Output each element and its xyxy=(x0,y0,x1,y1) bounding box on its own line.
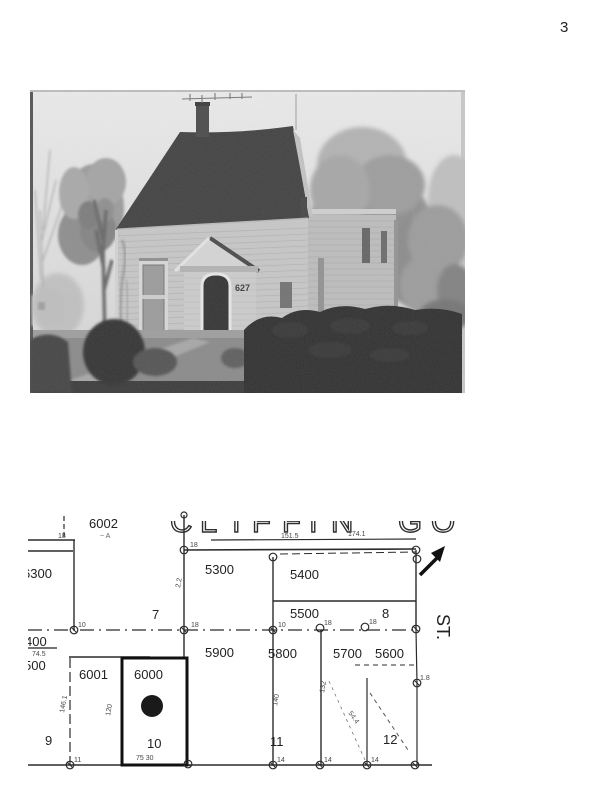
svg-text:5900: 5900 xyxy=(205,645,234,660)
svg-text:1.8: 1.8 xyxy=(420,675,430,682)
svg-text:C: C xyxy=(170,504,192,539)
svg-text:18: 18 xyxy=(324,620,332,627)
svg-text:174.1: 174.1 xyxy=(348,531,366,538)
svg-text:5600: 5600 xyxy=(375,646,404,661)
svg-text:6001: 6001 xyxy=(79,667,108,682)
svg-text:74.5: 74.5 xyxy=(32,651,46,658)
svg-text:~ A: ~ A xyxy=(100,533,111,540)
svg-text:14: 14 xyxy=(371,757,379,764)
svg-text:400: 400 xyxy=(28,634,47,649)
svg-text:75 30: 75 30 xyxy=(136,755,154,762)
svg-text:132: 132 xyxy=(319,681,328,694)
svg-text:ST.: ST. xyxy=(433,614,453,640)
svg-text:146.1: 146.1 xyxy=(59,695,69,714)
svg-text:14: 14 xyxy=(277,757,285,764)
svg-text:18: 18 xyxy=(190,542,198,549)
svg-text:18: 18 xyxy=(369,619,377,626)
svg-text:I: I xyxy=(232,504,241,539)
svg-text:6000: 6000 xyxy=(134,667,163,682)
svg-text:6002: 6002 xyxy=(89,516,118,531)
svg-text:5800: 5800 xyxy=(268,646,297,661)
svg-text:6300: 6300 xyxy=(28,566,52,581)
svg-text:2.2: 2.2 xyxy=(175,577,184,588)
svg-text:I: I xyxy=(309,504,318,539)
svg-text:10: 10 xyxy=(78,622,86,629)
svg-text:F: F xyxy=(252,504,271,539)
svg-text:5700: 5700 xyxy=(333,646,362,661)
svg-text:O: O xyxy=(431,504,455,539)
svg-text:151.5: 151.5 xyxy=(281,533,299,540)
svg-text:L: L xyxy=(200,504,217,539)
svg-text:G: G xyxy=(398,504,422,539)
svg-text:7: 7 xyxy=(152,607,159,622)
svg-text:54.4: 54.4 xyxy=(346,710,360,725)
svg-text:5400: 5400 xyxy=(290,567,319,582)
svg-text:11: 11 xyxy=(270,734,284,749)
svg-text:8: 8 xyxy=(382,606,389,621)
svg-text:500: 500 xyxy=(28,658,46,673)
svg-text:9: 9 xyxy=(45,733,52,748)
svg-text:5300: 5300 xyxy=(205,562,234,577)
svg-text:5500: 5500 xyxy=(290,606,319,621)
svg-text:10: 10 xyxy=(147,736,161,751)
svg-text:10: 10 xyxy=(278,622,286,629)
svg-text:14: 14 xyxy=(324,757,332,764)
svg-text:18: 18 xyxy=(58,533,66,540)
svg-text:120: 120 xyxy=(105,704,114,717)
svg-text:12: 12 xyxy=(383,732,397,747)
svg-text:140: 140 xyxy=(272,694,281,707)
svg-text:11: 11 xyxy=(74,757,81,764)
svg-text:18: 18 xyxy=(191,622,199,629)
